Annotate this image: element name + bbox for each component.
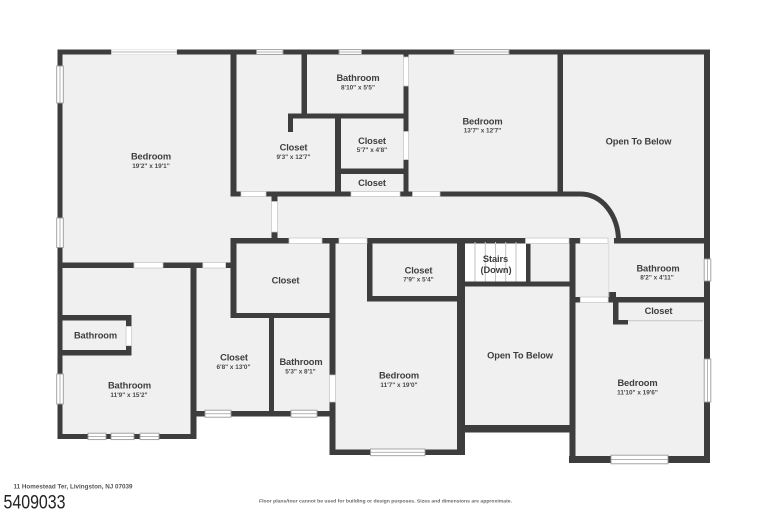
- svg-text:Bathroom: Bathroom: [636, 264, 679, 274]
- svg-text:8'10" x 5'5": 8'10" x 5'5": [341, 84, 375, 91]
- svg-text:Closet: Closet: [220, 353, 248, 363]
- svg-text:Bathroom: Bathroom: [108, 381, 151, 391]
- svg-text:Bathroom: Bathroom: [74, 331, 117, 341]
- svg-text:7'9" x 5'4": 7'9" x 5'4": [403, 277, 433, 284]
- svg-text:5409033: 5409033: [4, 492, 66, 512]
- svg-text:Bedroom: Bedroom: [462, 116, 502, 126]
- svg-text:19'2" x 19'1": 19'2" x 19'1": [132, 163, 170, 170]
- svg-text:Closet: Closet: [405, 265, 433, 275]
- svg-text:5'7" x 4'8": 5'7" x 4'8": [357, 147, 387, 154]
- svg-text:Stairs: Stairs: [483, 254, 508, 264]
- svg-text:Open To Below: Open To Below: [487, 351, 554, 361]
- svg-text:6'8" x 13'0": 6'8" x 13'0": [217, 364, 251, 371]
- svg-text:Bedroom: Bedroom: [617, 378, 657, 388]
- svg-text:Bedroom: Bedroom: [131, 152, 171, 162]
- svg-text:11 Homestead Ter, Livingston,: 11 Homestead Ter, Livingston, NJ 07039: [14, 484, 133, 491]
- svg-text:11'7" x 19'0": 11'7" x 19'0": [380, 382, 417, 389]
- svg-text:Bedroom: Bedroom: [379, 371, 419, 381]
- svg-text:Closet: Closet: [358, 178, 386, 188]
- svg-text:13'7" x 12'7": 13'7" x 12'7": [464, 128, 502, 135]
- svg-text:Open To Below: Open To Below: [606, 137, 673, 147]
- svg-text:Bathroom: Bathroom: [336, 73, 379, 83]
- svg-text:(Down): (Down): [481, 265, 512, 275]
- svg-text:Bathroom: Bathroom: [279, 357, 322, 367]
- svg-text:9'3" x 12'7": 9'3" x 12'7": [277, 154, 311, 161]
- svg-text:11'10" x 19'6": 11'10" x 19'6": [617, 390, 658, 397]
- svg-text:8'2" x 4'11": 8'2" x 4'11": [640, 275, 674, 282]
- svg-text:11'9" x 15'2": 11'9" x 15'2": [110, 392, 147, 399]
- svg-text:Closet: Closet: [645, 306, 673, 316]
- svg-text:Closet: Closet: [358, 136, 386, 146]
- svg-text:5'3" x 8'1": 5'3" x 8'1": [285, 369, 315, 376]
- svg-text:Floor plans/tour cannot be use: Floor plans/tour cannot be used for buil…: [259, 498, 512, 503]
- svg-text:Closet: Closet: [280, 143, 308, 153]
- svg-text:Closet: Closet: [272, 276, 300, 286]
